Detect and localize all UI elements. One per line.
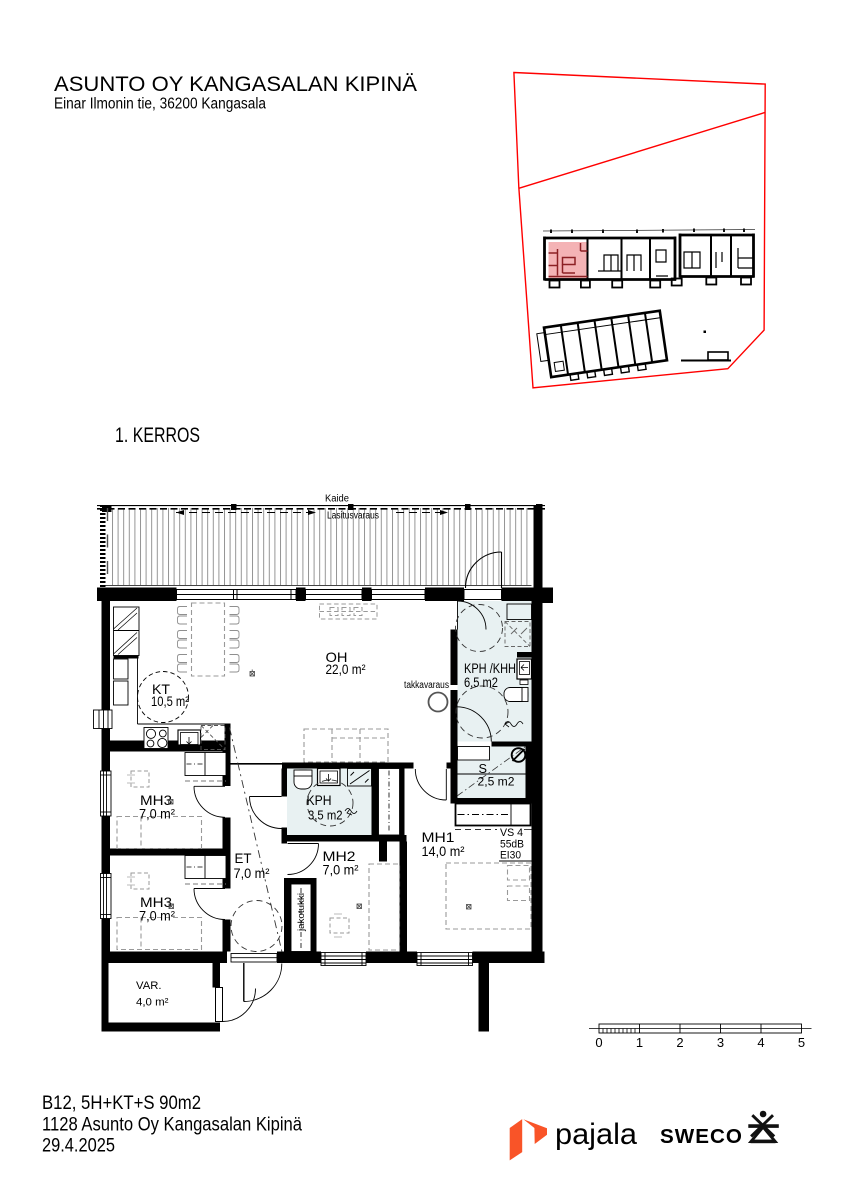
svg-text:7,0 m²: 7,0 m² (139, 908, 175, 924)
svg-text:takkavaraus: takkavaraus (404, 680, 449, 691)
svg-text:2: 2 (676, 1035, 683, 1050)
svg-text:KPH: KPH (307, 792, 332, 808)
svg-text:3,5 m2: 3,5 m2 (308, 808, 343, 823)
svg-text:1. KERROS: 1. KERROS (115, 424, 200, 447)
svg-text:VAR.: VAR. (136, 980, 162, 992)
svg-text:Einar Ilmonin tie, 36200 Kanga: Einar Ilmonin tie, 36200 Kangasala (54, 96, 266, 113)
svg-text:EI30: EI30 (500, 850, 521, 862)
svg-text:4: 4 (757, 1035, 764, 1050)
svg-text:2,5 m2: 2,5 m2 (478, 775, 515, 789)
svg-text:1128 Asunto Oy Kangasalan Kipi: 1128 Asunto Oy Kangasalan Kipinä (42, 1115, 302, 1136)
svg-text:SWECO: SWECO (660, 1126, 743, 1148)
svg-text:14,0 m²: 14,0 m² (422, 843, 465, 859)
svg-text:Lasitusvaraus: Lasitusvaraus (327, 511, 379, 522)
svg-text:7,0 m²: 7,0 m² (139, 806, 175, 822)
svg-text:jakotukki: jakotukki (296, 893, 307, 932)
svg-text:KPH /KHH: KPH /KHH (464, 661, 516, 676)
svg-text:1: 1 (636, 1035, 643, 1050)
svg-text:22,0 m²: 22,0 m² (326, 661, 366, 677)
svg-text:Kaide: Kaide (325, 494, 349, 505)
svg-text:4,0 m²: 4,0 m² (136, 997, 169, 1009)
svg-text:10,5 m²: 10,5 m² (151, 693, 189, 709)
svg-text:VS 4: VS 4 (500, 827, 523, 839)
svg-text:6,5 m2: 6,5 m2 (464, 675, 498, 690)
svg-text:7,0 m²: 7,0 m² (234, 865, 270, 881)
svg-text:7,0 m²: 7,0 m² (323, 862, 359, 878)
svg-text:0: 0 (595, 1035, 602, 1050)
svg-text:pajala: pajala (555, 1118, 637, 1151)
svg-text:ASUNTO OY KANGASALAN KIPINÄ: ASUNTO OY KANGASALAN KIPINÄ (54, 73, 417, 96)
svg-text:29.4.2025: 29.4.2025 (42, 1136, 115, 1157)
svg-text:ET: ET (235, 850, 252, 866)
svg-text:5: 5 (798, 1035, 805, 1050)
svg-text:3: 3 (717, 1035, 724, 1050)
svg-text:B12, 5H+KT+S 90m2: B12, 5H+KT+S 90m2 (42, 1093, 201, 1114)
